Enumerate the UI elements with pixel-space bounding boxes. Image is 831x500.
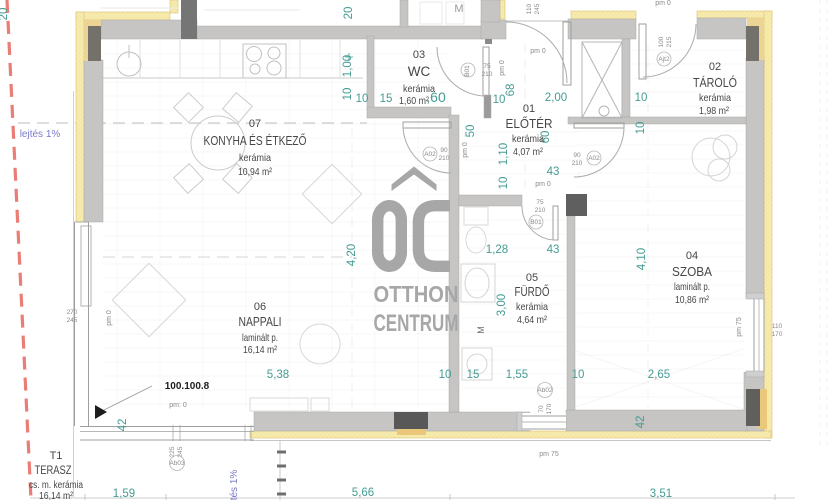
svg-text:lejtés 1%: lejtés 1%	[20, 129, 61, 140]
svg-text:5,66: 5,66	[352, 487, 374, 499]
svg-text:03: 03	[413, 49, 425, 61]
svg-text:A02: A02	[424, 151, 436, 158]
svg-text:43: 43	[547, 244, 560, 256]
svg-text:1,98 m²: 1,98 m²	[699, 105, 729, 117]
svg-text:10: 10	[356, 93, 369, 105]
svg-text:1,28: 1,28	[486, 244, 508, 256]
svg-text:1,60 m²: 1,60 m²	[399, 95, 429, 107]
svg-text:CENTRUM: CENTRUM	[374, 310, 459, 337]
svg-text:M: M	[454, 3, 463, 15]
svg-text:TERASZ: TERASZ	[35, 465, 72, 477]
svg-text:10: 10	[635, 92, 648, 104]
svg-text:20: 20	[343, 7, 355, 20]
svg-text:245: 245	[67, 317, 78, 324]
svg-text:16,14 m²: 16,14 m²	[39, 491, 74, 500]
svg-text:90: 90	[573, 152, 581, 159]
svg-text:10: 10	[635, 122, 647, 135]
svg-text:110: 110	[772, 323, 783, 330]
svg-text:kerámia: kerámia	[512, 133, 544, 145]
svg-text:T1: T1	[50, 450, 63, 462]
svg-text:10: 10	[493, 94, 506, 106]
svg-text:4,10: 4,10	[636, 248, 648, 270]
svg-text:70: 70	[538, 405, 545, 413]
svg-text:TÁROLÓ: TÁROLÓ	[693, 75, 737, 90]
svg-text:15: 15	[380, 93, 393, 105]
svg-text:10,86 m²: 10,86 m²	[675, 294, 709, 306]
svg-text:210: 210	[482, 71, 493, 78]
svg-text:kerámia: kerámia	[403, 83, 435, 95]
svg-text:10: 10	[342, 88, 354, 101]
svg-text:kerámia: kerámia	[239, 152, 271, 164]
svg-text:B01: B01	[530, 219, 542, 226]
svg-text:kerámia: kerámia	[516, 301, 548, 313]
svg-text:43: 43	[547, 166, 560, 178]
svg-text:2,65: 2,65	[648, 369, 670, 381]
svg-text:pm 0: pm 0	[106, 310, 113, 326]
svg-text:pm 0: pm 0	[535, 181, 551, 188]
svg-text:1,00: 1,00	[342, 55, 354, 77]
svg-text:42: 42	[117, 419, 129, 432]
svg-text:cs. m. kerámia: cs. m. kerámia	[29, 480, 83, 491]
svg-text:pm 75: pm 75	[736, 317, 743, 337]
svg-text:210: 210	[572, 160, 583, 167]
svg-text:pm 0: pm 0	[655, 0, 671, 7]
svg-text:pm 0: pm 0	[530, 48, 546, 55]
svg-text:KONYHA ÉS ÉTKEZŐ: KONYHA ÉS ÉTKEZŐ	[204, 133, 307, 148]
svg-text:FÜRDŐ: FÜRDŐ	[515, 284, 550, 299]
svg-text:170: 170	[772, 331, 783, 338]
svg-text:1,55: 1,55	[506, 369, 528, 381]
svg-text:05: 05	[526, 272, 538, 284]
svg-text:270: 270	[67, 309, 78, 316]
svg-text:210: 210	[535, 207, 546, 214]
svg-text:2,00: 2,00	[545, 92, 567, 104]
svg-text:15: 15	[467, 369, 480, 381]
svg-text:laminált p.: laminált p.	[674, 281, 710, 293]
svg-text:42: 42	[635, 416, 647, 429]
svg-text:4,07 m²: 4,07 m²	[513, 146, 543, 158]
svg-text:lejtés 1%: lejtés 1%	[229, 470, 240, 500]
svg-text:10: 10	[498, 177, 510, 190]
svg-text:Ajt2: Ajt2	[658, 56, 670, 63]
svg-text:215: 215	[666, 36, 673, 47]
svg-text:1,10: 1,10	[498, 143, 510, 165]
svg-text:4,64 m²: 4,64 m²	[517, 314, 547, 326]
svg-text:OTTHON: OTTHON	[374, 281, 459, 307]
svg-text:02: 02	[709, 61, 721, 73]
svg-text:5,38: 5,38	[267, 369, 289, 381]
svg-text:A02: A02	[588, 155, 600, 162]
svg-text:Ab03: Ab03	[169, 460, 185, 467]
svg-text:90: 90	[440, 147, 448, 154]
svg-text:20: 20	[0, 8, 10, 21]
svg-text:1,59: 1,59	[113, 488, 135, 500]
svg-text:Ab02: Ab02	[537, 387, 553, 394]
svg-text:68: 68	[505, 84, 517, 97]
svg-text:75: 75	[536, 199, 544, 206]
svg-text:50: 50	[465, 125, 477, 138]
svg-text:4,20: 4,20	[346, 244, 358, 266]
svg-text:01: 01	[523, 103, 535, 115]
svg-text:07: 07	[249, 118, 261, 130]
svg-text:04: 04	[686, 250, 698, 262]
svg-text:16,14 m²: 16,14 m²	[243, 344, 277, 356]
svg-text:NAPPALI: NAPPALI	[239, 315, 282, 329]
svg-text:laminált p.: laminált p.	[242, 332, 278, 344]
svg-text:170: 170	[546, 403, 553, 414]
svg-text:110: 110	[526, 3, 533, 14]
svg-text:M: M	[476, 326, 486, 334]
svg-text:ELŐTÉR: ELŐTÉR	[506, 116, 553, 131]
svg-text:B01: B01	[464, 65, 471, 77]
svg-text:75: 75	[483, 63, 491, 70]
svg-text:100: 100	[658, 36, 665, 47]
svg-text:3,51: 3,51	[650, 488, 672, 500]
svg-text:10,94 m²: 10,94 m²	[238, 166, 272, 178]
svg-text:210: 210	[439, 155, 450, 162]
svg-text:06: 06	[254, 301, 266, 313]
svg-text:pm: 0: pm: 0	[169, 402, 187, 409]
svg-text:3,00: 3,00	[496, 294, 508, 316]
svg-text:245: 245	[534, 3, 541, 14]
svg-text:pm 75: pm 75	[539, 451, 559, 458]
svg-text:pm 0: pm 0	[462, 142, 469, 158]
svg-text:10: 10	[439, 369, 452, 381]
svg-text:SZOBA: SZOBA	[672, 265, 713, 279]
svg-text:pm 0: pm 0	[499, 60, 506, 76]
svg-text:kerámia: kerámia	[699, 92, 731, 104]
svg-text:WC: WC	[408, 64, 431, 79]
svg-text:10: 10	[572, 369, 585, 381]
